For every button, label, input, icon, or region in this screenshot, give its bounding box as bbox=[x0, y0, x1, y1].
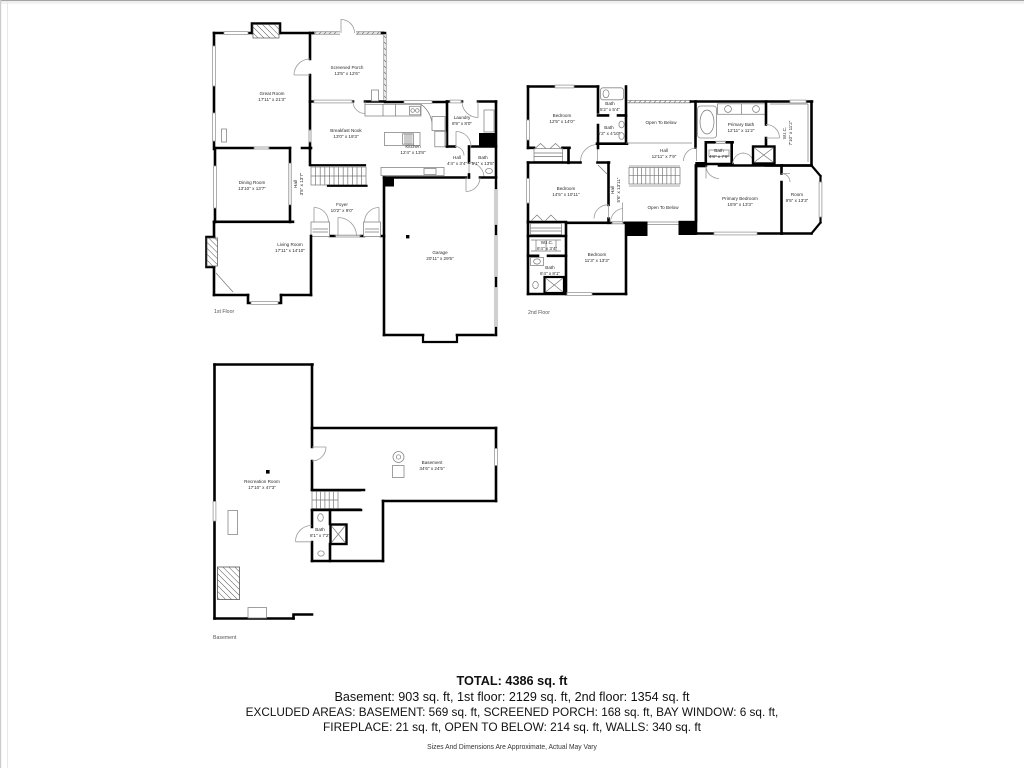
svg-text:Screened Porch: Screened Porch bbox=[331, 65, 364, 70]
svg-text:Breakfast Nook: Breakfast Nook bbox=[330, 128, 362, 133]
svg-text:5'2" x 5'4": 5'2" x 5'4" bbox=[600, 107, 620, 112]
svg-text:17'11" x 21'3": 17'11" x 21'3" bbox=[258, 97, 286, 102]
svg-text:10'2" x 9'0": 10'2" x 9'0" bbox=[331, 208, 354, 213]
svg-text:9'5" x 13'3": 9'5" x 13'3" bbox=[786, 198, 809, 203]
svg-text:Bath: Bath bbox=[714, 148, 724, 153]
svg-text:17'10" x 47'3": 17'10" x 47'3" bbox=[248, 485, 276, 490]
svg-text:11'3" x 13'3": 11'3" x 13'3" bbox=[585, 258, 610, 263]
svg-text:Laundry: Laundry bbox=[454, 115, 471, 120]
svg-text:34'6" x 24'5": 34'6" x 24'5" bbox=[419, 466, 445, 471]
svg-text:8'1" x 7'2": 8'1" x 7'2" bbox=[310, 533, 330, 538]
svg-text:Hall: Hall bbox=[660, 148, 668, 153]
svg-text:Bath: Bath bbox=[478, 155, 488, 160]
svg-text:12'11" x 11'2": 12'11" x 11'2" bbox=[727, 128, 754, 133]
svg-text:Garage: Garage bbox=[432, 250, 448, 255]
svg-text:Dining Room: Dining Room bbox=[239, 180, 266, 185]
svg-text:2nd Floor: 2nd Floor bbox=[528, 310, 550, 316]
svg-text:Open To Below: Open To Below bbox=[645, 120, 677, 125]
svg-text:Primary Bedroom: Primary Bedroom bbox=[722, 196, 758, 201]
svg-text:7'10" x 11'2": 7'10" x 11'2" bbox=[788, 120, 793, 145]
svg-text:1st Floor: 1st Floor bbox=[214, 309, 234, 315]
svg-text:Foyer: Foyer bbox=[336, 202, 348, 207]
svg-text:17'11" x 14'10": 17'11" x 14'10" bbox=[275, 248, 305, 253]
svg-text:20'11" x 29'5": 20'11" x 29'5" bbox=[426, 256, 454, 261]
svg-text:4'4" x 3'4": 4'4" x 3'4" bbox=[447, 161, 467, 166]
svg-text:5'1" x 13'5": 5'1" x 13'5" bbox=[472, 161, 495, 166]
svg-text:Hall: Hall bbox=[293, 180, 298, 188]
svg-text:Hall: Hall bbox=[610, 186, 615, 194]
svg-text:13'0" x 19'3": 13'0" x 19'3" bbox=[333, 134, 359, 139]
svg-text:15'9" x 13'3": 15'9" x 13'3" bbox=[727, 202, 753, 207]
svg-text:Bath: Bath bbox=[315, 527, 325, 532]
svg-text:12'11" x 7'9": 12'11" x 7'9" bbox=[652, 154, 677, 159]
svg-text:Great Room: Great Room bbox=[259, 91, 284, 96]
svg-text:Bedroom: Bedroom bbox=[553, 113, 572, 118]
svg-text:Bath: Bath bbox=[605, 101, 615, 106]
svg-text:12'4" x 13'8": 12'4" x 13'8" bbox=[400, 150, 426, 155]
svg-text:Recreation Room: Recreation Room bbox=[244, 479, 280, 484]
svg-text:Room: Room bbox=[791, 192, 803, 197]
svg-text:W.I.C.: W.I.C. bbox=[782, 127, 787, 140]
svg-text:6'4" x 8'1": 6'4" x 8'1" bbox=[540, 271, 560, 276]
svg-text:13'5" x 12'6": 13'5" x 12'6" bbox=[334, 71, 360, 76]
svg-text:8'9" x 8'0": 8'9" x 8'0" bbox=[452, 121, 472, 126]
svg-text:Bath: Bath bbox=[545, 265, 555, 270]
svg-text:Basement: Basement bbox=[213, 635, 237, 641]
svg-text:4'8" x 7'9": 4'8" x 7'9" bbox=[709, 154, 729, 159]
svg-text:Bath: Bath bbox=[604, 125, 614, 130]
svg-text:Primary Bath: Primary Bath bbox=[728, 122, 755, 127]
svg-text:6'4" x 3'4": 6'4" x 3'4" bbox=[537, 246, 557, 251]
svg-text:Hall: Hall bbox=[453, 155, 461, 160]
svg-text:5'2" x 4'10": 5'2" x 4'10" bbox=[598, 131, 621, 136]
svg-text:14'5" x 10'11": 14'5" x 10'11" bbox=[552, 192, 580, 197]
svg-text:3'5" x 13'7": 3'5" x 13'7" bbox=[299, 172, 304, 195]
svg-text:Basement: Basement bbox=[422, 460, 443, 465]
svg-text:Living Room: Living Room bbox=[277, 242, 303, 247]
svg-text:Kitchen: Kitchen bbox=[405, 144, 421, 149]
svg-text:W.I.C.: W.I.C. bbox=[541, 240, 554, 245]
svg-text:Bedroom: Bedroom bbox=[557, 186, 576, 191]
svg-text:5'6" x 13'11": 5'6" x 13'11" bbox=[616, 177, 621, 202]
svg-text:13'10" x 13'7": 13'10" x 13'7" bbox=[238, 186, 266, 191]
svg-text:Bedroom: Bedroom bbox=[588, 252, 607, 257]
svg-text:Open To Below: Open To Below bbox=[647, 205, 679, 210]
svg-text:12'5" x 14'0": 12'5" x 14'0" bbox=[549, 119, 575, 124]
